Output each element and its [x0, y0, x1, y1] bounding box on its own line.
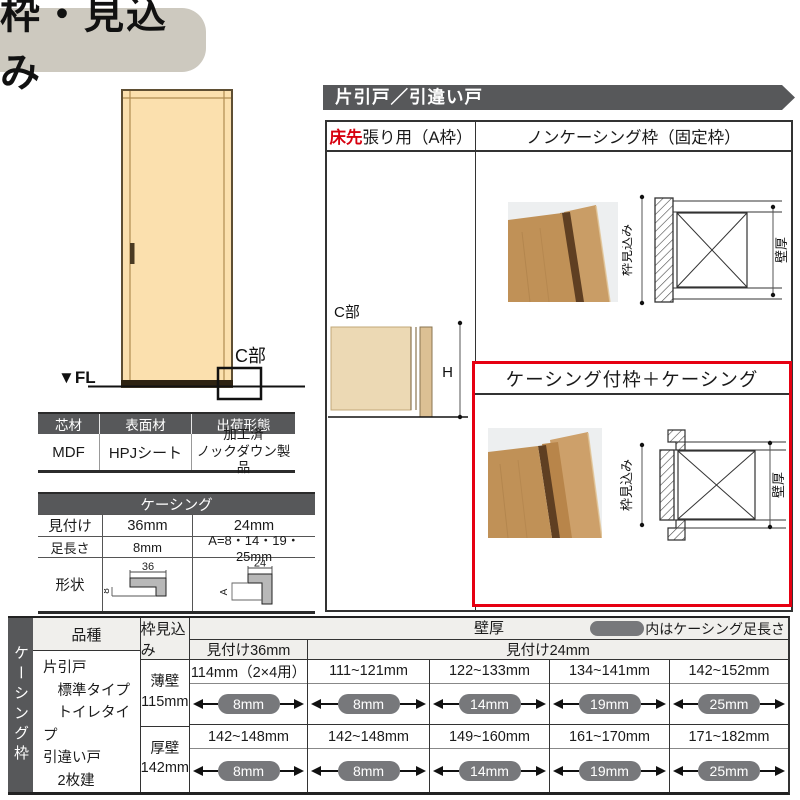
c-section-label: C部 — [235, 346, 266, 366]
casing-row-mitsuke-label: 見付け — [38, 515, 103, 536]
foot-length-pill: 19mm — [579, 694, 641, 714]
legend-note: 内はケーシング足長さ — [590, 618, 785, 639]
casing-row-ashinagasa-label: 足長さ — [38, 537, 103, 557]
door-handle — [130, 243, 135, 264]
casing-section-title: ケーシング付枠＋ケーシング — [475, 364, 789, 395]
casing-profile-36-diagram: 36 8 — [104, 560, 192, 610]
header-hinshu: 品種 — [33, 618, 140, 651]
dimension-table-side-label: ケーシング枠 — [8, 618, 33, 792]
section-banner: 片引戸／引違い戸 — [323, 85, 795, 110]
catalog-page: 枠・見込み ▼FL C部 芯材 表面材 出荷形態 MDF HPJシート 加工済 … — [0, 0, 800, 800]
profile24-width-label: 24 — [254, 560, 266, 570]
casing-table: ケーシング 見付け 36mm 24mm 足長さ 8mm A=8・14・19・25… — [38, 492, 315, 614]
profile36-width-label: 36 — [141, 561, 153, 573]
product-types: 片引戸 標準タイプ トイレタイプ 引違い戸 2枚建 — [33, 651, 140, 792]
foot-length-pill: 8mm — [218, 694, 280, 714]
noncasing-frame-photo — [508, 202, 618, 302]
noncasing-column-header: ノンケーシング枠（固定枠） — [476, 122, 791, 150]
material-value-core: MDF — [38, 434, 100, 470]
foot-length-pill: 14mm — [459, 761, 521, 781]
material-header-surface: 表面材 — [100, 414, 192, 434]
casing-row-keijo-label: 形状 — [38, 558, 103, 611]
casing-section-diagram: 枠見込み 壁厚 — [620, 415, 794, 550]
casing-mitsuke-36: 36mm — [103, 515, 193, 536]
page-title: 枠・見込み — [0, 8, 206, 72]
header-mitsuke-36: 見付け36mm — [190, 640, 308, 659]
c-section-detail-drawing: C部 H — [326, 295, 472, 467]
wall-type-thick: 厚壁 142mm — [141, 727, 189, 793]
door-panel — [122, 90, 232, 387]
casing-ashinagasa-36: 8mm — [103, 537, 193, 557]
foot-length-pill: 19mm — [579, 761, 641, 781]
foot-length-pill: 8mm — [338, 694, 400, 714]
foot-length-pill: 25mm — [698, 694, 760, 714]
material-header-core: 芯材 — [38, 414, 100, 434]
frame-depth-dim-label: 枠見込み — [620, 459, 634, 511]
table-row-thick-wall: 142~148mm 8mm 142~148mm 8mm 149~160mm 14… — [190, 725, 788, 792]
material-value-surface: HPJシート — [100, 434, 192, 470]
casing-frame-photo — [488, 428, 602, 538]
door-illustration: ▼FL C部 — [50, 85, 315, 410]
c-detail-label: C部 — [334, 304, 360, 321]
profile36-foot-label: 8 — [104, 587, 112, 593]
yukasaki-red-text: 床先 — [329, 124, 362, 148]
casing-table-title: ケーシング — [38, 494, 315, 514]
column-a-header: 床先張り用（A枠） — [327, 122, 476, 150]
material-table: 芯材 表面材 出荷形態 MDF HPJシート 加工済 ノックダウン製品 — [38, 412, 295, 473]
foot-length-pill: 14mm — [459, 694, 521, 714]
casing-ashinagasa-24: A=8・14・19・25mm — [193, 537, 315, 557]
dimension-table: ケーシング枠 品種 片引戸 標準タイプ トイレタイプ 引違い戸 2枚建 枠見込み… — [8, 616, 790, 795]
header-mitsuke-24: 見付け24mm — [308, 640, 788, 659]
casing-profile-24-diagram: 24 A — [210, 560, 298, 610]
wall-type-thin: 薄壁 115mm — [141, 660, 189, 727]
noncasing-section-diagram: 枠見込み 壁厚 — [622, 188, 794, 312]
wall-thickness-dim-label: 壁厚 — [774, 237, 789, 263]
foot-length-pill: 25mm — [698, 761, 760, 781]
header-wakumikomi: 枠見込み — [141, 618, 189, 660]
legend-pill-swatch — [590, 621, 644, 636]
table-row-thin-wall: 114mm（2×4用） 8mm 111~121mm 8mm 122~133mm … — [190, 660, 788, 726]
height-dim-label: H — [442, 364, 453, 381]
wall-thickness-dim-label: 壁厚 — [771, 472, 786, 498]
material-value-shipping: 加工済 ノックダウン製品 — [192, 434, 295, 470]
foot-length-pill: 8mm — [338, 761, 400, 781]
fl-label: ▼FL — [58, 368, 96, 387]
frame-depth-dim-label: 枠見込み — [622, 224, 634, 276]
profile24-foot-label: A — [219, 588, 230, 595]
foot-length-pill: 8mm — [218, 761, 280, 781]
